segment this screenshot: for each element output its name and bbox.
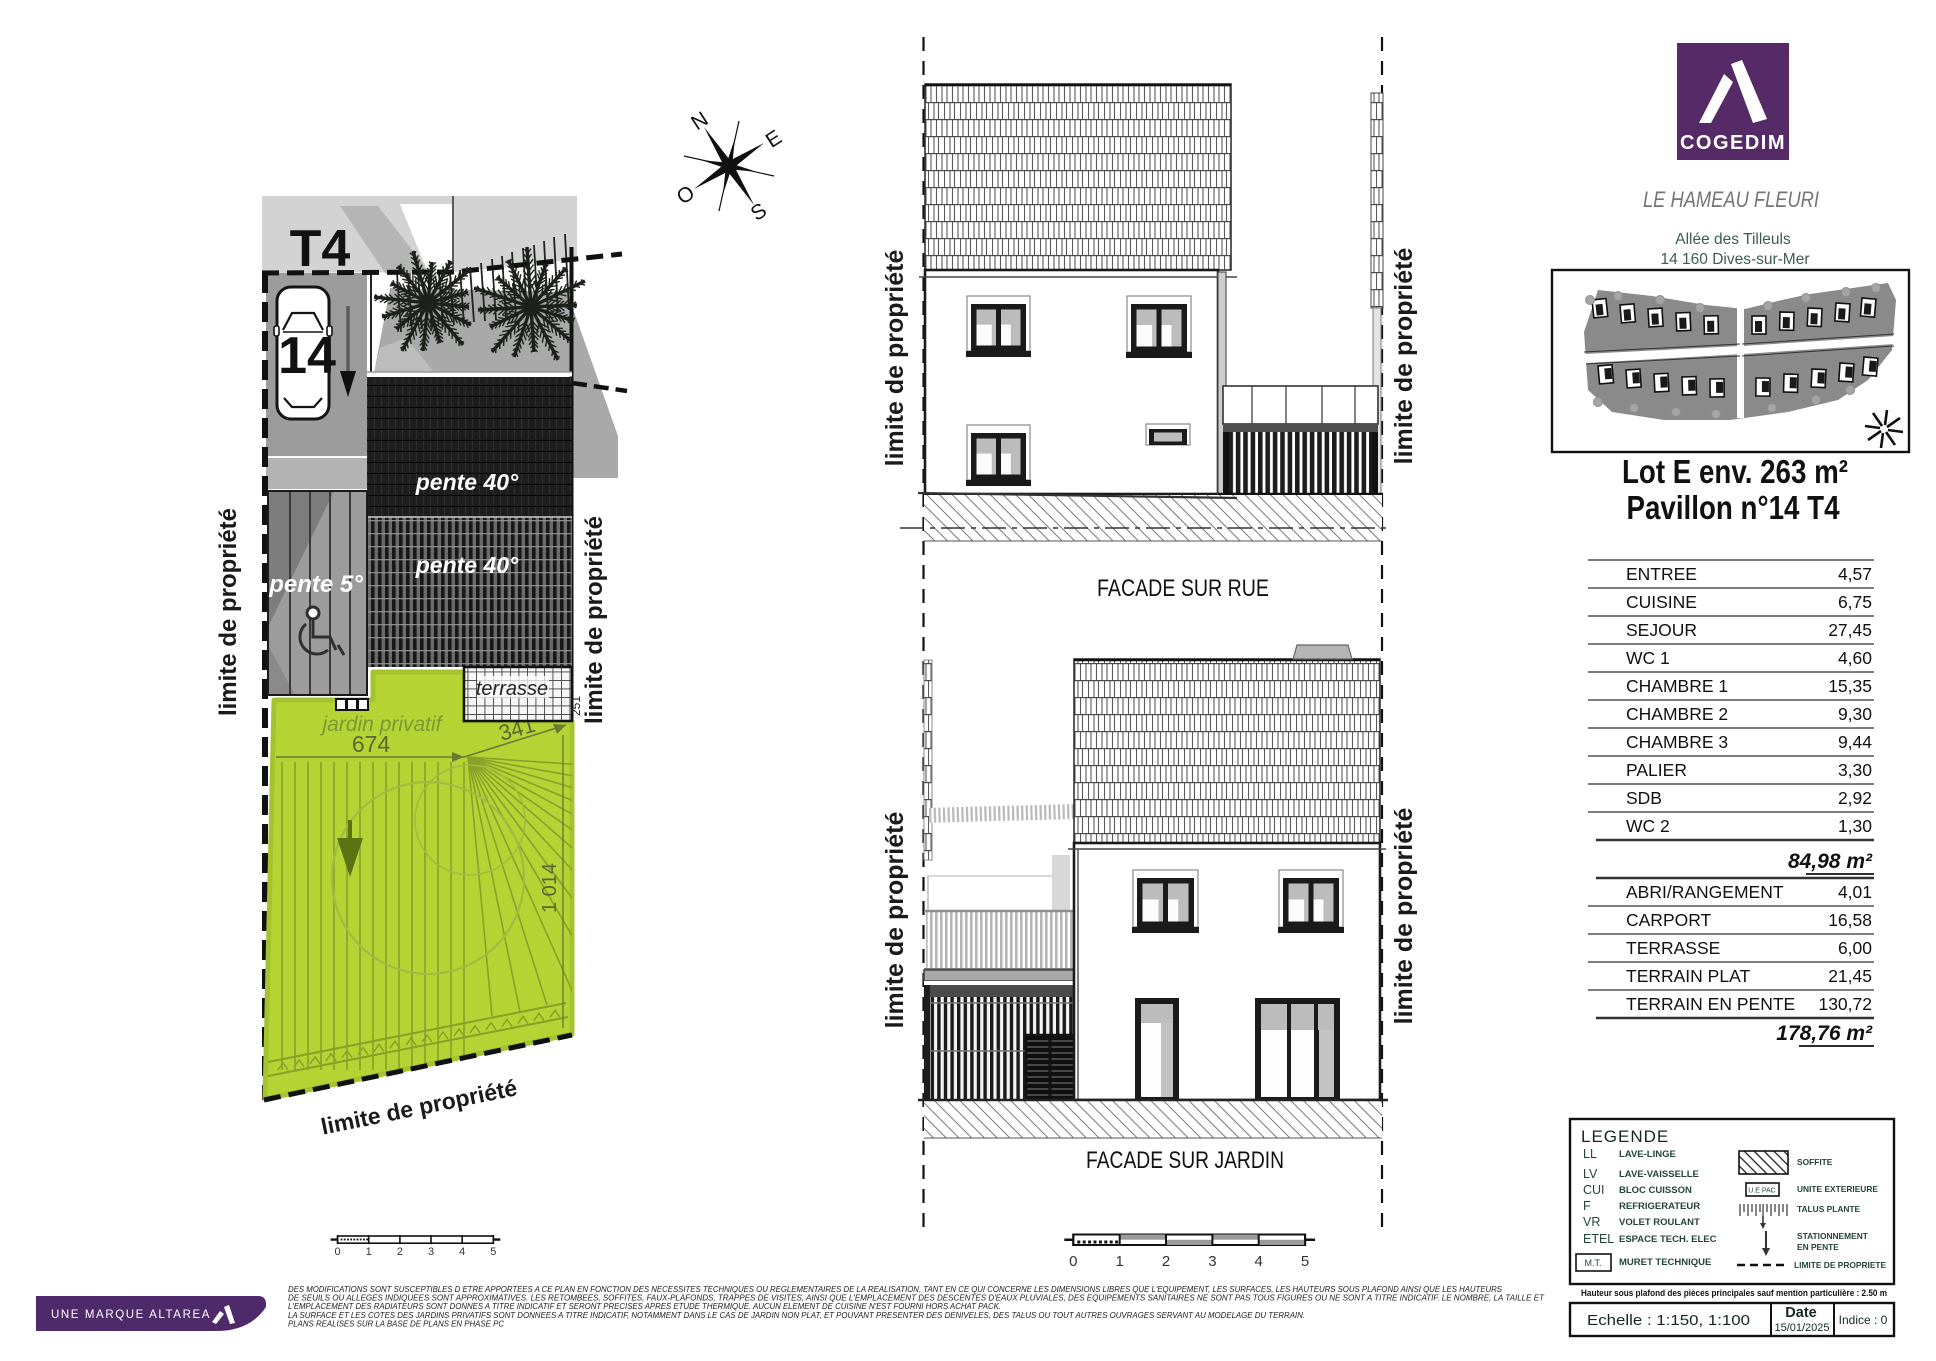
svg-text:9,30: 9,30 xyxy=(1838,704,1872,724)
svg-text:terrasse: terrasse xyxy=(476,678,548,700)
svg-text:Echelle : 1:150, 1:100: Echelle : 1:150, 1:100 xyxy=(1587,1312,1750,1329)
svg-text:T4: T4 xyxy=(290,220,351,278)
svg-text:ABRI/RANGEMENT: ABRI/RANGEMENT xyxy=(1626,882,1784,902)
svg-text:ETEL: ETEL xyxy=(1583,1232,1614,1246)
svg-text:PALIER: PALIER xyxy=(1626,760,1687,780)
svg-text:LEGENDE: LEGENDE xyxy=(1581,1127,1669,1146)
svg-text:Date: Date xyxy=(1785,1305,1816,1321)
svg-text:9,44: 9,44 xyxy=(1838,732,1872,752)
svg-text:LL: LL xyxy=(1583,1147,1597,1161)
svg-text:178,76 m²: 178,76 m² xyxy=(1776,1022,1873,1045)
svg-text:STATIONNEMENT: STATIONNEMENT xyxy=(1797,1231,1869,1241)
svg-text:4,60: 4,60 xyxy=(1838,648,1872,668)
svg-text:4,01: 4,01 xyxy=(1838,882,1872,902)
svg-text:UNE MARQUE ALTAREA: UNE MARQUE ALTAREA xyxy=(51,1309,211,1321)
svg-text:LAVE-LINGE: LAVE-LINGE xyxy=(1619,1149,1676,1160)
svg-text:Indice : 0: Indice : 0 xyxy=(1839,1313,1888,1327)
svg-text:limite de propriété: limite de propriété xyxy=(1390,248,1418,465)
svg-text:84,98 m²: 84,98 m² xyxy=(1788,850,1873,873)
svg-text:BLOC CUISSON: BLOC CUISSON xyxy=(1619,1185,1692,1196)
svg-text:1,30: 1,30 xyxy=(1838,816,1872,836)
svg-text:CUISINE: CUISINE xyxy=(1626,592,1697,612)
svg-text:Allée des Tilleuls: Allée des Tilleuls xyxy=(1675,231,1791,248)
svg-text:Hauteur sous plafond des pièce: Hauteur sous plafond des pièces principa… xyxy=(1581,1287,1887,1298)
svg-text:4: 4 xyxy=(459,1246,465,1258)
svg-text:CARPORT: CARPORT xyxy=(1626,910,1712,930)
svg-text:0: 0 xyxy=(1069,1253,1077,1270)
svg-text:FACADE SUR JARDIN: FACADE SUR JARDIN xyxy=(1086,1147,1284,1174)
svg-text:VOLET ROULANT: VOLET ROULANT xyxy=(1619,1217,1700,1228)
svg-text:CHAMBRE 3: CHAMBRE 3 xyxy=(1626,732,1728,752)
svg-text:0: 0 xyxy=(335,1246,341,1258)
svg-text:COGEDIM: COGEDIM xyxy=(1680,132,1786,154)
svg-text:pente 40°: pente 40° xyxy=(415,552,519,578)
svg-text:16,58: 16,58 xyxy=(1828,910,1872,930)
svg-text:14 160 Dives-sur-Mer: 14 160 Dives-sur-Mer xyxy=(1660,251,1809,268)
svg-text:6,00: 6,00 xyxy=(1838,938,1872,958)
svg-text:2: 2 xyxy=(397,1246,403,1258)
svg-text:2: 2 xyxy=(1162,1253,1170,1270)
svg-text:LIMITE DE PROPRIETE: LIMITE DE PROPRIETE xyxy=(1794,1260,1887,1270)
svg-text:U.E PAC: U.E PAC xyxy=(1748,1188,1776,1195)
svg-text:674: 674 xyxy=(352,731,391,757)
svg-text:15/01/2025: 15/01/2025 xyxy=(1774,1322,1829,1334)
svg-text:limite de propriété: limite de propriété xyxy=(1390,808,1418,1025)
svg-text:F: F xyxy=(1583,1199,1591,1213)
svg-text:3: 3 xyxy=(428,1246,434,1258)
svg-text:SDB: SDB xyxy=(1626,788,1662,808)
svg-text:ENTREE: ENTREE xyxy=(1626,564,1697,584)
svg-text:3: 3 xyxy=(1208,1253,1216,1270)
svg-text:LAVE-VAISSELLE: LAVE-VAISSELLE xyxy=(1619,1169,1699,1180)
svg-text:Pavillon n°14 T4: Pavillon n°14 T4 xyxy=(1627,489,1841,526)
svg-text:1: 1 xyxy=(1116,1253,1124,1270)
svg-text:1 014: 1 014 xyxy=(539,863,561,913)
svg-text:Lot E env. 263 m²: Lot E env. 263 m² xyxy=(1622,453,1848,490)
svg-text:ESPACE TECH. ELEC: ESPACE TECH. ELEC xyxy=(1619,1234,1717,1245)
svg-text:21,45: 21,45 xyxy=(1828,966,1872,986)
svg-text:PLANS REALISES SUR LA BASE DE: PLANS REALISES SUR LA BASE DE PLANS EN P… xyxy=(288,1319,504,1328)
svg-text:M.T.: M.T. xyxy=(1585,1258,1602,1268)
svg-text:REFRIGERATEUR: REFRIGERATEUR xyxy=(1619,1201,1700,1212)
svg-text:SEJOUR: SEJOUR xyxy=(1626,620,1697,640)
svg-text:5: 5 xyxy=(1301,1253,1309,1270)
svg-text:15,35: 15,35 xyxy=(1828,676,1872,696)
svg-text:3,30: 3,30 xyxy=(1838,760,1872,780)
svg-text:LV: LV xyxy=(1583,1167,1598,1181)
svg-text:27,45: 27,45 xyxy=(1828,620,1872,640)
svg-text:14: 14 xyxy=(278,327,336,385)
svg-text:TERRAIN PLAT: TERRAIN PLAT xyxy=(1626,966,1750,986)
svg-text:TERRAIN EN PENTE: TERRAIN EN PENTE xyxy=(1626,994,1795,1014)
svg-text:VR: VR xyxy=(1583,1215,1600,1229)
svg-text:TALUS PLANTE: TALUS PLANTE xyxy=(1797,1204,1861,1214)
svg-text:4,57: 4,57 xyxy=(1838,564,1872,584)
svg-text:130,72: 130,72 xyxy=(1818,994,1872,1014)
svg-text:pente 40°: pente 40° xyxy=(415,469,519,495)
svg-text:UNITE EXTERIEURE: UNITE EXTERIEURE xyxy=(1797,1184,1878,1194)
svg-text:CHAMBRE 2: CHAMBRE 2 xyxy=(1626,704,1728,724)
svg-text:WC 2: WC 2 xyxy=(1626,816,1670,836)
svg-text:MURET TECHNIQUE: MURET TECHNIQUE xyxy=(1619,1257,1711,1268)
svg-text:limite de propriété: limite de propriété xyxy=(881,250,909,467)
svg-text:1: 1 xyxy=(366,1246,372,1258)
svg-text:TERRASSE: TERRASSE xyxy=(1626,938,1720,958)
svg-text:limite de propriété: limite de propriété xyxy=(215,508,242,716)
svg-text:pente 5°: pente 5° xyxy=(268,571,363,598)
svg-text:limite de propriété: limite de propriété xyxy=(881,812,909,1029)
svg-text:limite de propriété: limite de propriété xyxy=(581,516,608,724)
svg-text:4: 4 xyxy=(1255,1253,1263,1270)
svg-text:5: 5 xyxy=(490,1246,496,1258)
svg-text:CUI: CUI xyxy=(1583,1183,1605,1197)
svg-text:6,75: 6,75 xyxy=(1838,592,1872,612)
svg-text:2,92: 2,92 xyxy=(1838,788,1872,808)
svg-text:LE HAMEAU FLEURI: LE HAMEAU FLEURI xyxy=(1643,187,1819,212)
svg-text:CHAMBRE 1: CHAMBRE 1 xyxy=(1626,676,1728,696)
svg-text:SOFFITE: SOFFITE xyxy=(1797,1157,1833,1167)
svg-text:FACADE SUR RUE: FACADE SUR RUE xyxy=(1097,575,1269,602)
svg-text:WC 1: WC 1 xyxy=(1626,648,1670,668)
svg-text:EN PENTE: EN PENTE xyxy=(1797,1242,1839,1252)
